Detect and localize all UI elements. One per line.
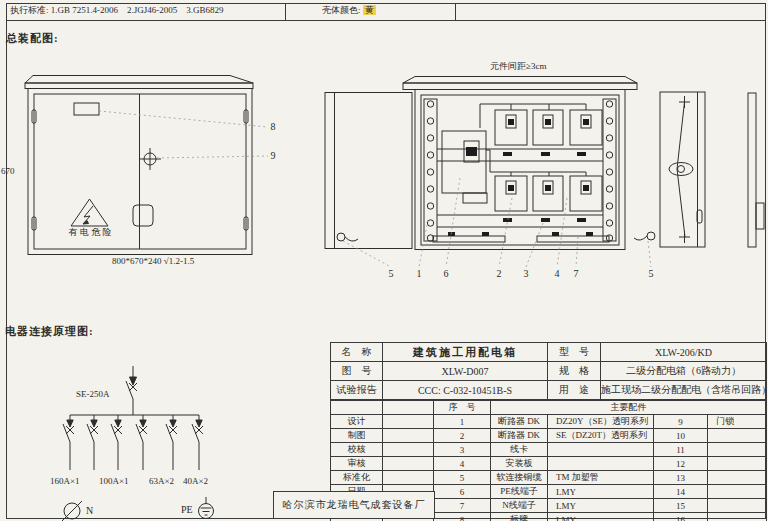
- part-spec: LMY: [548, 499, 654, 513]
- sign-cell: [383, 471, 434, 485]
- callout-8: 8: [266, 121, 280, 132]
- part-name: 线卡: [491, 443, 548, 457]
- neutral-label: N: [86, 505, 93, 516]
- left-door-open: [325, 93, 412, 249]
- seq-header: 序 号: [434, 401, 491, 415]
- sign-cell: [383, 429, 434, 443]
- shell-color-value: 黄: [363, 5, 376, 15]
- info-key: 名 称: [331, 343, 383, 362]
- seq-no: 15: [654, 499, 708, 513]
- open-view-leader-lines: [343, 178, 651, 267]
- drawing-number: XLW-D007: [383, 362, 548, 381]
- callout-7: 7: [569, 268, 583, 279]
- info-key: 试验报告: [331, 381, 383, 400]
- title-block: 名 称 建筑施工用配电箱 型 号 XLW-206/KD 图 号 XLW-D007…: [330, 342, 766, 521]
- assembly-open-view: [325, 77, 764, 250]
- seq-no: 5: [434, 471, 491, 485]
- callout-3: 3: [519, 268, 533, 279]
- spacing-note: 元件间距≥3cm: [490, 62, 546, 72]
- seq-no: 9: [654, 415, 708, 429]
- role-label: 校核: [331, 443, 383, 457]
- part-spec: [548, 443, 654, 457]
- part-name: 安装板: [491, 457, 548, 471]
- main-breaker-label: SE-250A: [76, 390, 110, 400]
- sign-cell: [383, 457, 434, 471]
- door-latch: [669, 163, 693, 176]
- seq-no: 1: [434, 415, 491, 429]
- info-key: 型 号: [548, 343, 601, 362]
- seq-no: 12: [654, 457, 708, 471]
- manufacturer-name: 哈尔滨市龙瑞电气成套设备厂: [273, 491, 435, 519]
- dark-marks: [448, 119, 593, 236]
- callout-1: 1: [412, 268, 426, 279]
- size-note: 800*670*240 √1.2-1.5: [112, 257, 194, 267]
- part-spec: SE（DZ20T）透明系列: [548, 429, 654, 443]
- part-name: N线端子: [491, 499, 548, 513]
- part-name: [708, 443, 767, 457]
- empty-cell: [331, 401, 383, 415]
- part-name: PE线端子: [491, 485, 548, 499]
- schematic-section-title: 电器连接原理图:: [5, 325, 94, 337]
- callout-9: 9: [266, 150, 280, 161]
- model-number: XLW-206/KD: [601, 343, 767, 362]
- part-spec: LMY: [548, 485, 654, 499]
- part-name: 标牌: [491, 513, 548, 521]
- drawing-sheet: 执行标准: 1.GB 7251.4-2006 2.JGJ46-2005 3.GB…: [0, 0, 768, 521]
- title-block-info-table: 名 称 建筑施工用配电箱 型 号 XLW-206/KD 图 号 XLW-D007…: [330, 342, 767, 400]
- role-label: 设计: [331, 415, 383, 429]
- parts-header: 主要配件: [491, 401, 767, 415]
- seq-no: 2: [434, 429, 491, 443]
- part-spec: [548, 457, 654, 471]
- product-name: 建筑施工用配电箱: [383, 343, 548, 362]
- part-name: [708, 499, 767, 513]
- part-name: [708, 457, 767, 471]
- callout-2: 2: [492, 268, 506, 279]
- part-name: 断路器 DK: [491, 415, 548, 429]
- seq-no: 8: [434, 513, 491, 521]
- part-name: [708, 429, 767, 443]
- part-name: [708, 471, 767, 485]
- spec-value: 二级分配电箱（6路动力）: [601, 362, 767, 381]
- role-label: 标准化: [331, 471, 383, 485]
- shell-color-label: 壳体颜色:: [322, 5, 363, 15]
- seq-no: 7: [434, 499, 491, 513]
- usage-value: 施工现场二级分配配电（含塔吊回路）: [601, 381, 767, 400]
- warning-text: 有 电 危 险: [58, 228, 122, 238]
- seq-no: 4: [434, 457, 491, 471]
- part-name: 断路器 DK: [491, 429, 548, 443]
- sign-cell: [383, 415, 434, 429]
- height-dimension: 670: [1, 167, 15, 177]
- part-name: [708, 485, 767, 499]
- assembly-leader-lines: [99, 111, 268, 158]
- shell-color-note: 壳体颜色: 黄: [322, 6, 376, 16]
- branch-label-40: 40A×2: [183, 477, 208, 487]
- part-name: 门锁: [708, 415, 767, 429]
- door-lock-box: [133, 205, 153, 226]
- test-report-number: CCC: C-032-10451B-S: [383, 381, 548, 400]
- seq-no: 10: [654, 429, 708, 443]
- part-spec: TM 加塑管: [548, 471, 654, 485]
- role-label: 审核: [331, 457, 383, 471]
- branch-label-100: 100A×1: [99, 477, 129, 487]
- seq-no: 11: [654, 443, 708, 457]
- callout-5-left: 5: [384, 268, 398, 279]
- callout-5-right: 5: [644, 268, 658, 279]
- side-panel: [748, 93, 756, 247]
- info-key: 图 号: [331, 362, 383, 381]
- part-spec: DZ20Y（SE）透明系列: [548, 415, 654, 429]
- branch-label-63: 63A×2: [149, 477, 174, 487]
- part-name: 软连接铜缆: [491, 471, 548, 485]
- right-door-open: [660, 92, 705, 247]
- info-key: 用 途: [548, 381, 601, 400]
- callout-4: 4: [550, 268, 564, 279]
- earth-label: PE: [181, 504, 193, 515]
- seq-no: 13: [654, 471, 708, 485]
- standards-note: 执行标准: 1.GB 7251.4-2006 2.JGJ46-2005 3.GB…: [10, 6, 224, 16]
- sign-cell: [383, 443, 434, 457]
- role-label: 制图: [331, 429, 383, 443]
- seq-no: 16: [654, 513, 708, 521]
- nameplate: [74, 103, 99, 115]
- seq-no: 3: [434, 443, 491, 457]
- warning-triangle-icon: [71, 199, 108, 226]
- part-name: [708, 513, 767, 521]
- seq-no: 14: [654, 485, 708, 499]
- assembly-section-title: 总装配图:: [6, 32, 59, 44]
- empty-cell: [383, 401, 434, 415]
- branch-label-160: 160A×1: [50, 477, 80, 487]
- part-spec: LMY: [548, 513, 654, 521]
- info-key: 规 格: [548, 362, 601, 381]
- seq-no: 6: [434, 485, 491, 499]
- callout-6: 6: [439, 268, 453, 279]
